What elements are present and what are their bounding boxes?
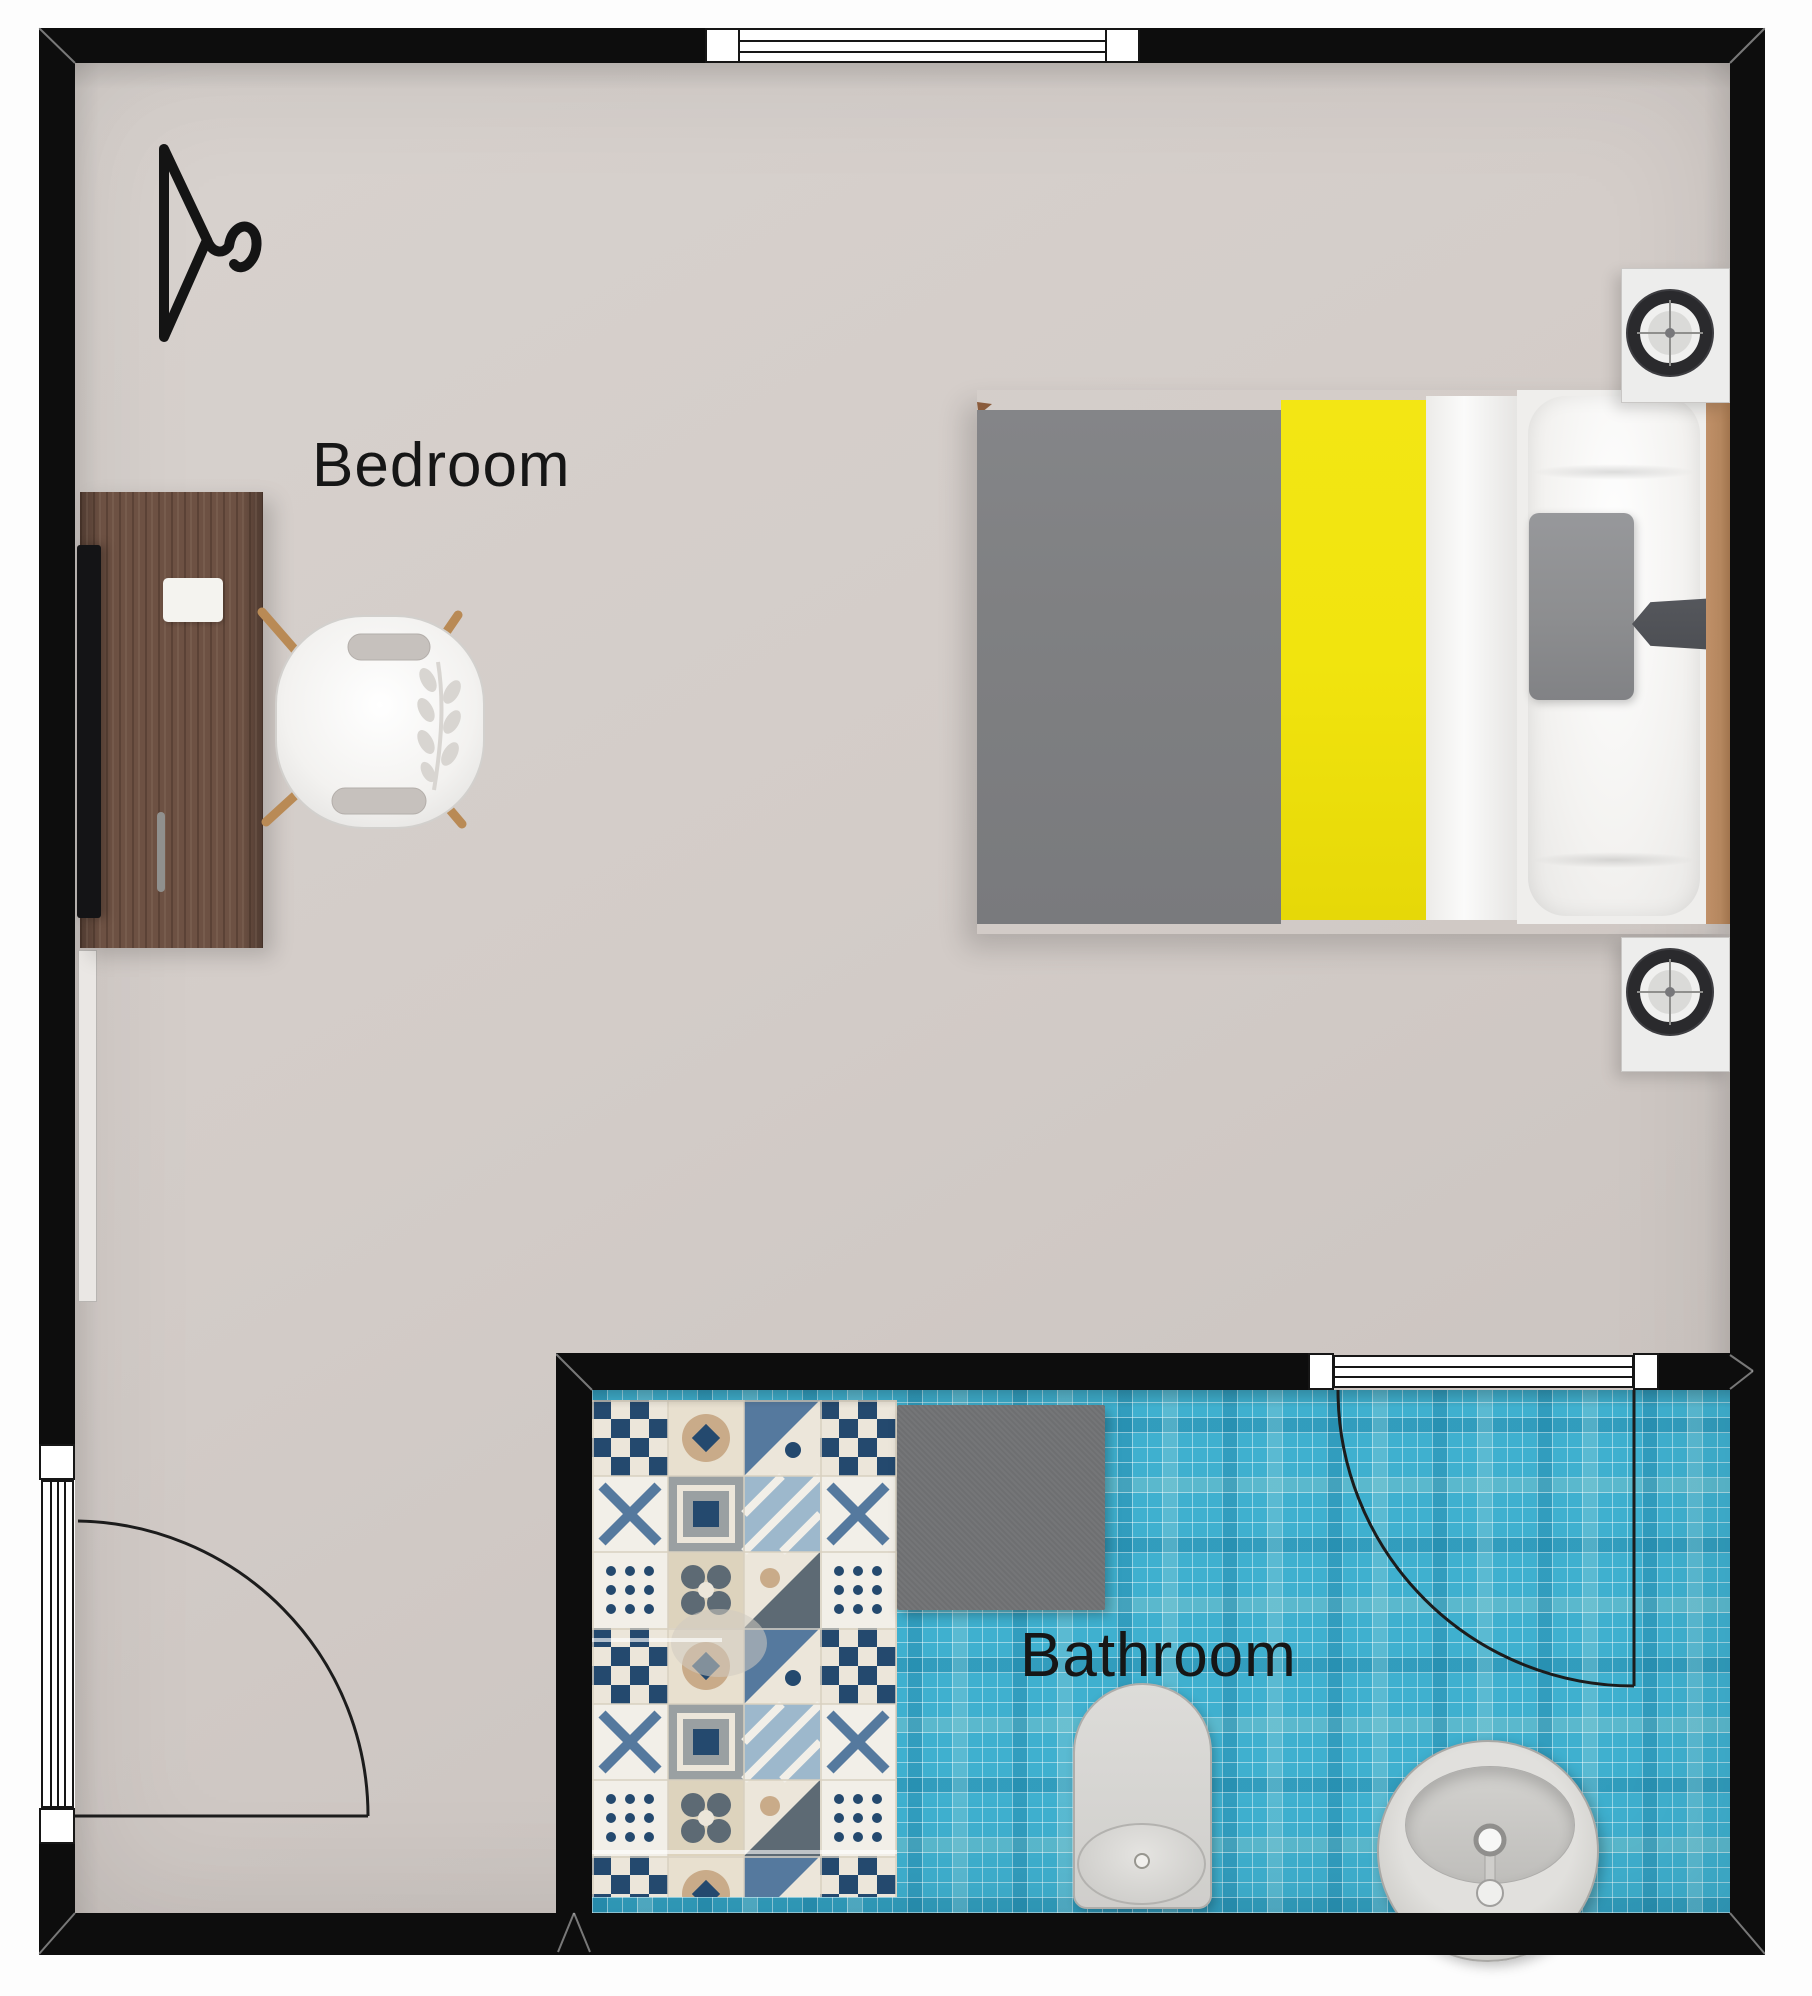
wall-shadow-top: [75, 63, 1730, 89]
desk-drawer-handle: [157, 812, 165, 892]
entry-door-jamb: [39, 1808, 75, 1844]
bathroom-door-panel: [1333, 1355, 1634, 1388]
bathroom-wall-left: [556, 1353, 592, 1913]
entry-door-jamb: [39, 1444, 75, 1480]
bathroom-patterned-tiles: [592, 1400, 897, 1897]
chair-slot-bottom: [332, 788, 426, 814]
bed-headboard: [1706, 392, 1730, 924]
bed-blanket-gray: [977, 410, 1281, 924]
window-symbol: [738, 28, 1107, 63]
double-bed: [977, 390, 1730, 934]
bed-blanket-yellow-stripe: [1281, 400, 1426, 920]
entry-door-panel: [41, 1480, 74, 1808]
toilet-flush-button: [1134, 1853, 1150, 1869]
wall-left: [39, 28, 75, 1444]
wall-bottom: [39, 1913, 1765, 1955]
desk-chair: [240, 590, 500, 850]
monitor: [77, 545, 101, 918]
wall-right: [1730, 28, 1765, 1955]
speaker-lamp-icon: [1625, 288, 1715, 378]
pillow-crease: [1533, 852, 1695, 868]
bathroom-door-jamb: [1633, 1353, 1659, 1390]
window-jamb: [705, 28, 740, 63]
wall-top: [39, 28, 705, 63]
bathroom-wall-top: [1658, 1353, 1730, 1390]
toilet: [1073, 1683, 1212, 1909]
bath-mat: [897, 1405, 1105, 1610]
desk-paper: [163, 578, 223, 622]
floor-plan: Bedroom Bathroom: [0, 0, 1812, 1996]
bed-sheet-fold: [1426, 396, 1517, 920]
bathroom-wall-top: [556, 1353, 1308, 1390]
bedroom-label: Bedroom: [312, 430, 571, 501]
gray-pillow: [1529, 513, 1634, 700]
wall-top: [1140, 28, 1765, 63]
desk: [80, 492, 263, 948]
bathroom-door-jamb: [1308, 1353, 1334, 1390]
pillow-crease: [1533, 464, 1695, 480]
speaker-lamp-icon: [1625, 947, 1715, 1037]
chair-slot-top: [348, 634, 430, 660]
radiator: [78, 950, 97, 1302]
window-jamb: [1105, 28, 1140, 63]
bathroom-label: Bathroom: [1020, 1620, 1297, 1691]
bathroom-wall-shadow: [592, 1390, 1730, 1408]
